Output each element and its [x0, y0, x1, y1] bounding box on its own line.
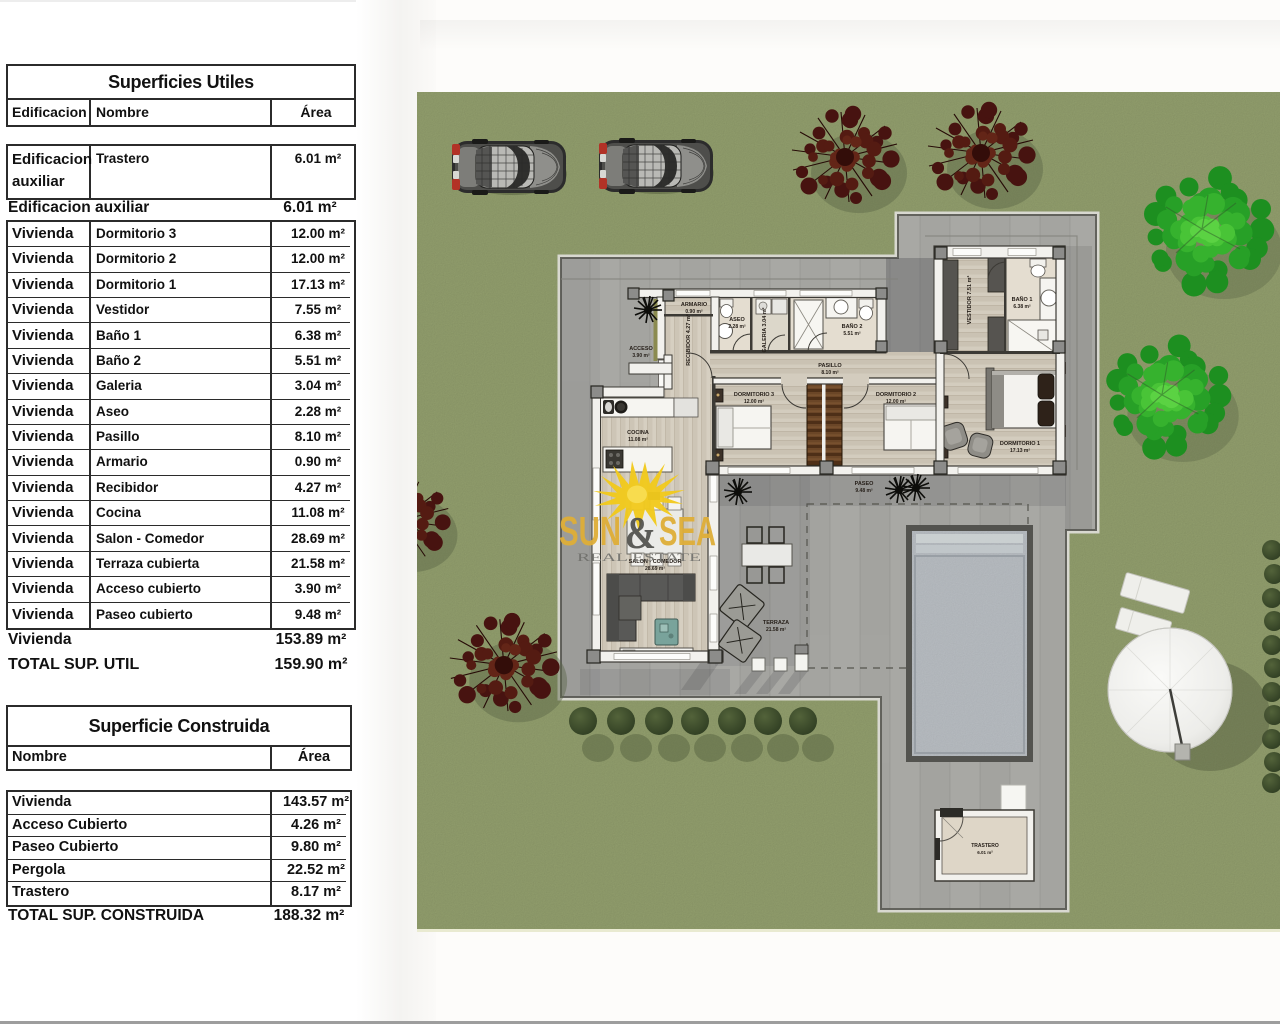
- svg-text:ACCESO: ACCESO: [629, 346, 653, 352]
- svg-text:SEA: SEA: [659, 508, 716, 554]
- svg-text:2.28 m²: 2.28 m²: [728, 324, 746, 330]
- svg-text:RECIBIDOR 4.27 m²: RECIBIDOR 4.27 m²: [685, 314, 692, 366]
- svg-text:9.48 m²: 9.48 m²: [855, 488, 873, 494]
- svg-text:DORMITORIO 3: DORMITORIO 3: [734, 392, 774, 398]
- svg-text:12.00 m²: 12.00 m²: [886, 399, 906, 405]
- svg-text:0.90 m²: 0.90 m²: [685, 309, 703, 315]
- svg-text:6.38 m²: 6.38 m²: [1013, 304, 1031, 310]
- svg-text:28.69 m²: 28.69 m²: [645, 566, 665, 572]
- svg-text:PASILLO: PASILLO: [818, 363, 842, 369]
- svg-text:17.13 m²: 17.13 m²: [1010, 448, 1030, 454]
- svg-text:PASEO: PASEO: [855, 481, 875, 487]
- svg-text:GALERIA 3.04 m²: GALERIA 3.04 m²: [761, 307, 768, 352]
- svg-text:DORMITORIO 1: DORMITORIO 1: [1000, 441, 1040, 447]
- svg-text:VESTIDOR 7.51 m²: VESTIDOR 7.51 m²: [966, 276, 973, 325]
- svg-text:TRASTERO: TRASTERO: [971, 843, 999, 849]
- svg-text:11.08 m²: 11.08 m²: [628, 437, 648, 443]
- svg-text:3.90 m²: 3.90 m²: [632, 353, 650, 359]
- svg-text:REAL ESTATE: REAL ESTATE: [577, 552, 701, 564]
- svg-text:TERRAZA: TERRAZA: [763, 620, 789, 626]
- svg-text:8.10 m²: 8.10 m²: [821, 370, 839, 376]
- svg-text:COCINA: COCINA: [627, 430, 649, 436]
- svg-text:BAÑO 2: BAÑO 2: [842, 323, 863, 330]
- svg-text:SUN: SUN: [559, 508, 621, 554]
- svg-text:12.00 m²: 12.00 m²: [744, 399, 764, 405]
- svg-text:&: &: [625, 507, 656, 558]
- svg-text:5.51 m²: 5.51 m²: [843, 331, 861, 337]
- svg-text:21.58 m²: 21.58 m²: [766, 627, 786, 633]
- svg-text:BAÑO 1: BAÑO 1: [1012, 296, 1033, 303]
- svg-text:ASEO: ASEO: [729, 317, 745, 323]
- svg-text:ARMARIO: ARMARIO: [681, 302, 708, 308]
- svg-text:6.01 m²: 6.01 m²: [977, 850, 993, 855]
- svg-text:DORMITORIO 2: DORMITORIO 2: [876, 392, 916, 398]
